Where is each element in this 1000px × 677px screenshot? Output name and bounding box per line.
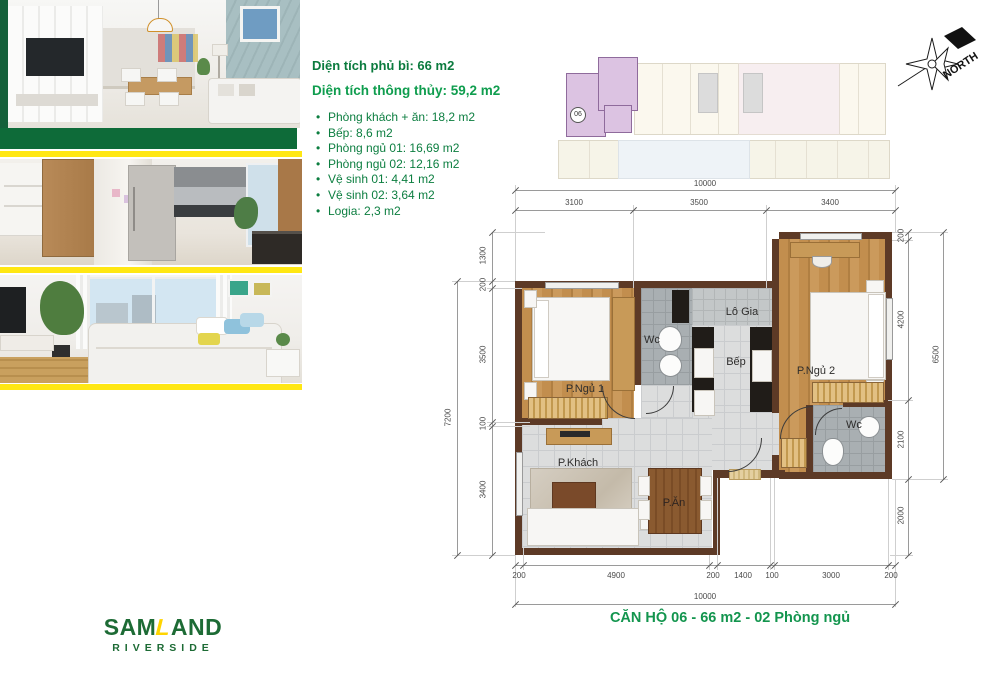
wall-art-frame	[228, 279, 250, 297]
fridge-plan	[694, 390, 715, 416]
nightstand2	[866, 280, 884, 293]
backsplash	[174, 187, 246, 205]
dim-right-seg: 4200	[897, 300, 906, 340]
sideboard	[0, 335, 54, 351]
gross-area-title: Diện tích phủ bì: 66 m2	[312, 58, 527, 73]
coffee-table	[552, 482, 596, 510]
dim-bottom-seg: 200	[499, 571, 539, 580]
toilet-wc2	[822, 438, 844, 466]
sofa-cushion	[239, 84, 255, 96]
dim-bottom-seg: 3000	[811, 571, 851, 580]
dim-line-left-overall	[457, 281, 458, 555]
sofa-plan	[527, 508, 639, 546]
dining-chair-plan	[638, 500, 650, 520]
dining-chair	[159, 92, 179, 106]
dark-island	[252, 231, 302, 264]
apartment-caption: CĂN HỘ 06 - 66 m2 - 02 Phòng ngủ	[540, 610, 920, 626]
logo-riverside: RIVERSIDE	[88, 642, 238, 654]
ext-line	[774, 478, 775, 570]
label-loggia: Lô Gia	[714, 306, 770, 318]
ext-line	[717, 478, 718, 570]
dim-left-seg: 3500	[479, 335, 488, 375]
dining-chair-plan	[700, 500, 712, 520]
window-bedroom1	[545, 282, 619, 289]
dim-right-seg: 2100	[897, 420, 906, 460]
dim-bottom-seg: 4900	[576, 571, 656, 580]
dim-left-seg: 200	[479, 265, 488, 305]
brochure-page: Diện tích phủ bì: 66 m2 Diện tích thông …	[0, 0, 1000, 677]
list-item: Bếp: 8,6 m2	[316, 126, 527, 142]
pillow-yellow	[198, 333, 220, 345]
lamp-shade	[212, 44, 228, 56]
dining-chair	[157, 68, 177, 82]
wall-bedroom1-bottom	[522, 418, 602, 425]
wall-entry-left	[713, 470, 729, 478]
ext-line	[523, 548, 524, 570]
yellow-band	[0, 267, 302, 273]
ext-line	[515, 185, 516, 281]
blanket-fold	[96, 347, 272, 349]
dim-top-seg: 3100	[534, 198, 614, 207]
wall-bedroom2-left	[772, 239, 779, 405]
dim-bottom-seg: 100	[752, 571, 792, 580]
wall-bedroom2-stub	[772, 405, 779, 413]
desk-chair	[812, 256, 832, 268]
fridge-handle	[133, 187, 135, 231]
dim-top-overall: 10000	[655, 179, 755, 188]
tv-screen	[0, 287, 26, 333]
fridge	[128, 165, 176, 261]
pillow-blue	[240, 313, 264, 327]
wardrobe1	[528, 397, 608, 419]
logo-sam: SAM	[104, 614, 157, 640]
pendant-lamp	[147, 18, 173, 32]
unit-number-badge: 06	[570, 107, 586, 123]
label-bedroom1: P.Ngủ 1	[545, 383, 625, 395]
sticky-note	[112, 189, 120, 197]
keyplan-core	[698, 73, 718, 113]
sink-wc1	[659, 354, 682, 377]
photo-living-room	[8, 0, 300, 128]
ext-line	[633, 205, 634, 288]
label-bedroom2: P.Ngủ 2	[784, 365, 848, 377]
wall-bedroom2-stub2	[772, 455, 779, 472]
window-living	[516, 452, 523, 516]
wall-art-frame	[240, 6, 280, 42]
dim-top-seg: 3400	[790, 198, 870, 207]
dim-line-right-seg	[908, 232, 909, 555]
plant	[234, 197, 258, 229]
window-bedroom2-top	[800, 233, 862, 240]
photo-bedroom	[0, 275, 302, 383]
list-item: Phòng ngủ 02: 12,16 m2	[316, 157, 527, 173]
list-item: Vệ sinh 02: 3,64 m2	[316, 188, 527, 204]
gallery-frames	[158, 34, 198, 62]
cabinet-bedroom1	[612, 297, 635, 391]
dim-left-overall: 7200	[444, 388, 453, 448]
dim-left-seg: 3400	[479, 470, 488, 510]
nightstand1	[524, 290, 537, 308]
tv-living	[560, 431, 590, 437]
keyplan-unit06-upper	[598, 57, 638, 111]
dim-bottom-seg: 200	[871, 571, 911, 580]
plant	[197, 58, 210, 75]
kitchen-sink	[694, 348, 714, 378]
left-green-strip	[0, 0, 8, 149]
ext-line	[766, 205, 767, 288]
wall-bottom	[515, 548, 720, 555]
north-compass-icon: NORTH	[896, 24, 992, 100]
wood-floor	[0, 357, 90, 383]
north-arrow: NORTH	[896, 24, 992, 100]
room-area-list: Phòng khách + ăn: 18,2 m2 Bếp: 8,6 m2 Ph…	[316, 110, 527, 219]
label-dining: P.Ăn	[652, 497, 696, 509]
ext-line	[888, 479, 889, 570]
area-info-block: Diện tích phủ bì: 66 m2 Diện tích thông …	[312, 58, 527, 219]
dim-bottom-overall: 10000	[665, 592, 745, 601]
bed1-pillows	[534, 300, 549, 378]
label-kitchen: Bếp	[718, 356, 754, 368]
shaft	[672, 290, 689, 323]
dim-right-seg: 2000	[897, 496, 906, 536]
keyplan-core	[743, 73, 763, 113]
wall-wc2-bottom	[779, 472, 892, 479]
label-wc2: Wc	[840, 419, 868, 431]
shelf-line	[4, 185, 46, 187]
dim-right-seg: 200	[897, 216, 906, 256]
shelf-line	[4, 205, 46, 207]
wardrobe2	[812, 382, 884, 403]
dining-chair-plan	[700, 476, 712, 496]
building-keyplan: 06	[558, 45, 898, 177]
dining-chair-plan	[638, 476, 650, 496]
ext-line	[770, 478, 771, 570]
dim-right-overall: 6500	[932, 335, 941, 375]
window-bedroom2-right	[886, 298, 893, 360]
ext-line	[892, 479, 948, 480]
dining-chair	[121, 68, 141, 82]
dim-line-top-overall	[515, 190, 896, 191]
logo-line1: SAMLAND	[88, 616, 238, 639]
list-item: Phòng ngủ 01: 16,69 m2	[316, 141, 527, 157]
logo-and: AND	[171, 614, 222, 640]
green-band	[0, 128, 297, 149]
list-item: Logia: 2,3 m2	[316, 204, 527, 220]
samland-logo: SAMLAND RIVERSIDE	[88, 616, 238, 654]
unit-number: 06	[574, 111, 582, 118]
wardrobe-nook	[781, 438, 807, 468]
upper-cabinets	[174, 167, 246, 187]
sofa-cushion	[218, 84, 234, 96]
photo-kitchen	[0, 159, 302, 265]
stove	[752, 350, 772, 382]
dining-chair	[125, 92, 145, 106]
label-wc1: Wc	[638, 334, 666, 346]
pendant-cord	[158, 0, 159, 20]
tv-screen	[26, 38, 84, 76]
wall-art-frame	[252, 281, 272, 297]
dim-top-seg: 3500	[659, 198, 739, 207]
ext-line	[452, 555, 515, 556]
list-item: Vệ sinh 01: 4,41 m2	[316, 172, 527, 188]
dim-left-seg: 100	[479, 404, 488, 444]
net-area-title: Diện tích thông thủy: 59,2 m2	[312, 83, 527, 98]
dim-line-bottom-overall	[515, 604, 896, 605]
dim-line-right-overall	[943, 232, 944, 479]
label-living: P.Khách	[543, 457, 613, 469]
nightstand	[266, 349, 300, 377]
yellow-band	[0, 384, 302, 390]
bed2-pillows	[868, 294, 884, 378]
keyplan-bottom-row-blue	[618, 140, 750, 179]
dim-line-top-seg	[515, 210, 896, 211]
dim-line-bottom-seg	[515, 565, 896, 566]
ext-line	[492, 232, 545, 233]
tv-cabinet	[16, 94, 98, 106]
keyplan-unit06-lower	[604, 105, 632, 133]
wood-door	[42, 159, 96, 257]
list-item: Phòng khách + ăn: 18,2 m2	[316, 110, 527, 126]
north-needle	[944, 27, 976, 49]
plant-small	[276, 333, 290, 346]
bed	[88, 323, 282, 383]
yellow-band	[0, 151, 302, 157]
